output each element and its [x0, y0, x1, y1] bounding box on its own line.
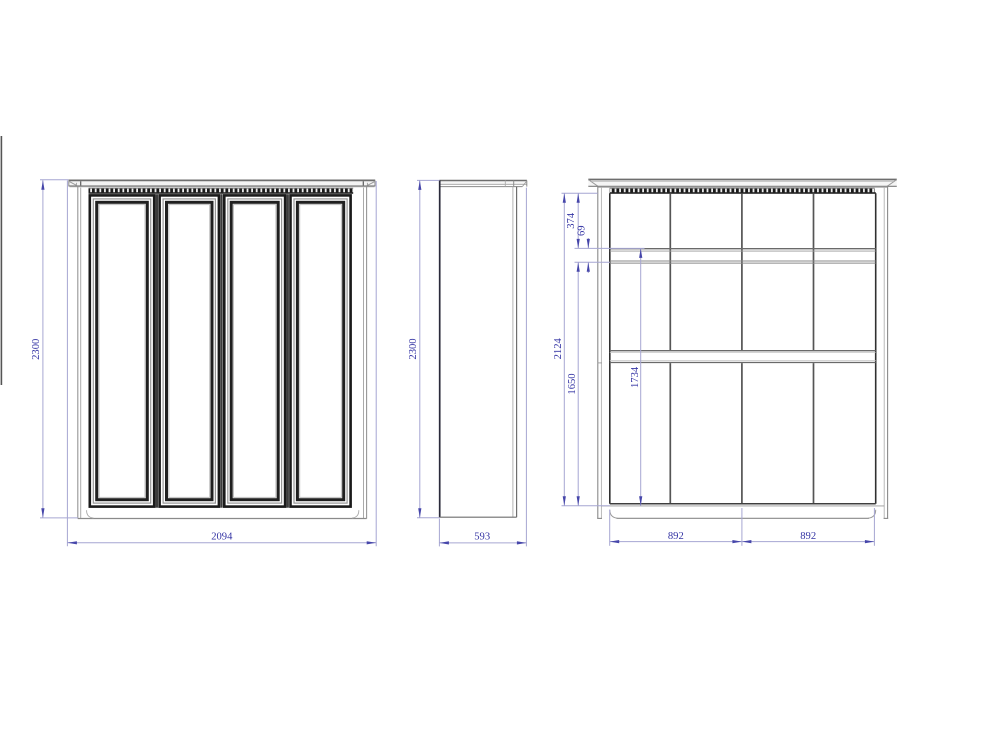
svg-text:2300: 2300 [31, 339, 42, 360]
svg-text:1650: 1650 [567, 373, 578, 394]
svg-text:892: 892 [800, 531, 816, 542]
svg-text:593: 593 [474, 532, 490, 543]
svg-text:2300: 2300 [408, 338, 419, 359]
svg-text:1734: 1734 [630, 366, 641, 388]
svg-text:892: 892 [668, 531, 684, 542]
svg-text:2124: 2124 [553, 338, 564, 360]
svg-text:69: 69 [576, 225, 587, 236]
svg-text:2094: 2094 [211, 531, 233, 542]
